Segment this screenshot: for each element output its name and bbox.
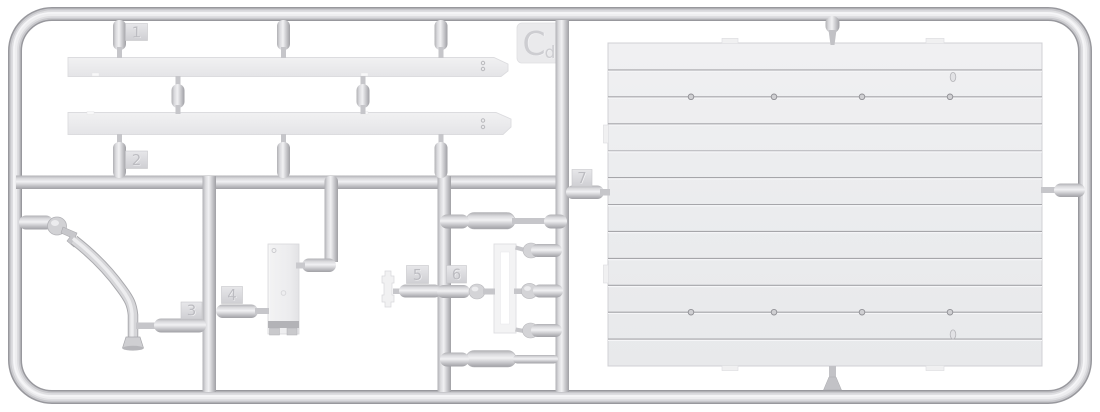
sprue-illustration: C C d d xyxy=(0,0,1100,412)
runner-vertical-left xyxy=(203,176,217,392)
box-base-band xyxy=(268,321,299,328)
part-tag-6: 6 6 xyxy=(447,266,467,285)
runner-vertical-stub-elbow xyxy=(296,176,338,272)
part-floor-panel xyxy=(603,38,1042,370)
part-tag-6-number: 6 xyxy=(452,266,462,284)
part-tag-1-number: 1 xyxy=(132,24,142,42)
part-tag-3: 3 3 xyxy=(181,302,202,321)
part-tag-7: 7 7 xyxy=(572,169,592,188)
sprue-code-letter: C xyxy=(522,24,545,63)
part-strip-1 xyxy=(68,58,508,77)
part-sausage-bottom xyxy=(466,351,516,368)
strip2-notch xyxy=(87,112,94,115)
sprue-photo: C C d d xyxy=(0,0,1100,412)
runner-horizontal-mid xyxy=(16,176,569,190)
part-sausage-top xyxy=(466,213,515,230)
part-exhaust-pipe xyxy=(19,216,144,351)
part-tag-7-number: 7 xyxy=(577,169,587,187)
part-tag-2: 2 2 xyxy=(126,151,148,170)
part-tag-5-number: 5 xyxy=(413,266,423,284)
part-tag-1: 1 1 xyxy=(126,24,148,43)
sprue-code-sub: d xyxy=(545,43,556,63)
part-strip-2 xyxy=(68,112,511,135)
part-tag-5: 5 5 xyxy=(407,266,429,285)
part-bracket xyxy=(382,271,394,307)
part-tag-4: 4 4 xyxy=(222,286,243,305)
strip1-notch xyxy=(92,73,99,76)
part-ladder-frame xyxy=(494,244,516,333)
part-box xyxy=(268,244,299,335)
box-foot xyxy=(270,328,280,335)
floor-panel-oval-hole xyxy=(950,72,956,81)
sprue-code-tab: C C d d xyxy=(517,23,560,64)
part-tag-2-number: 2 xyxy=(132,151,142,169)
part-tag-3-number: 3 xyxy=(187,302,197,320)
floor-panel-oval-hole xyxy=(950,330,956,339)
box-foot xyxy=(287,328,297,335)
strip1-notch xyxy=(361,73,368,76)
part-tag-4-number: 4 xyxy=(227,286,237,304)
